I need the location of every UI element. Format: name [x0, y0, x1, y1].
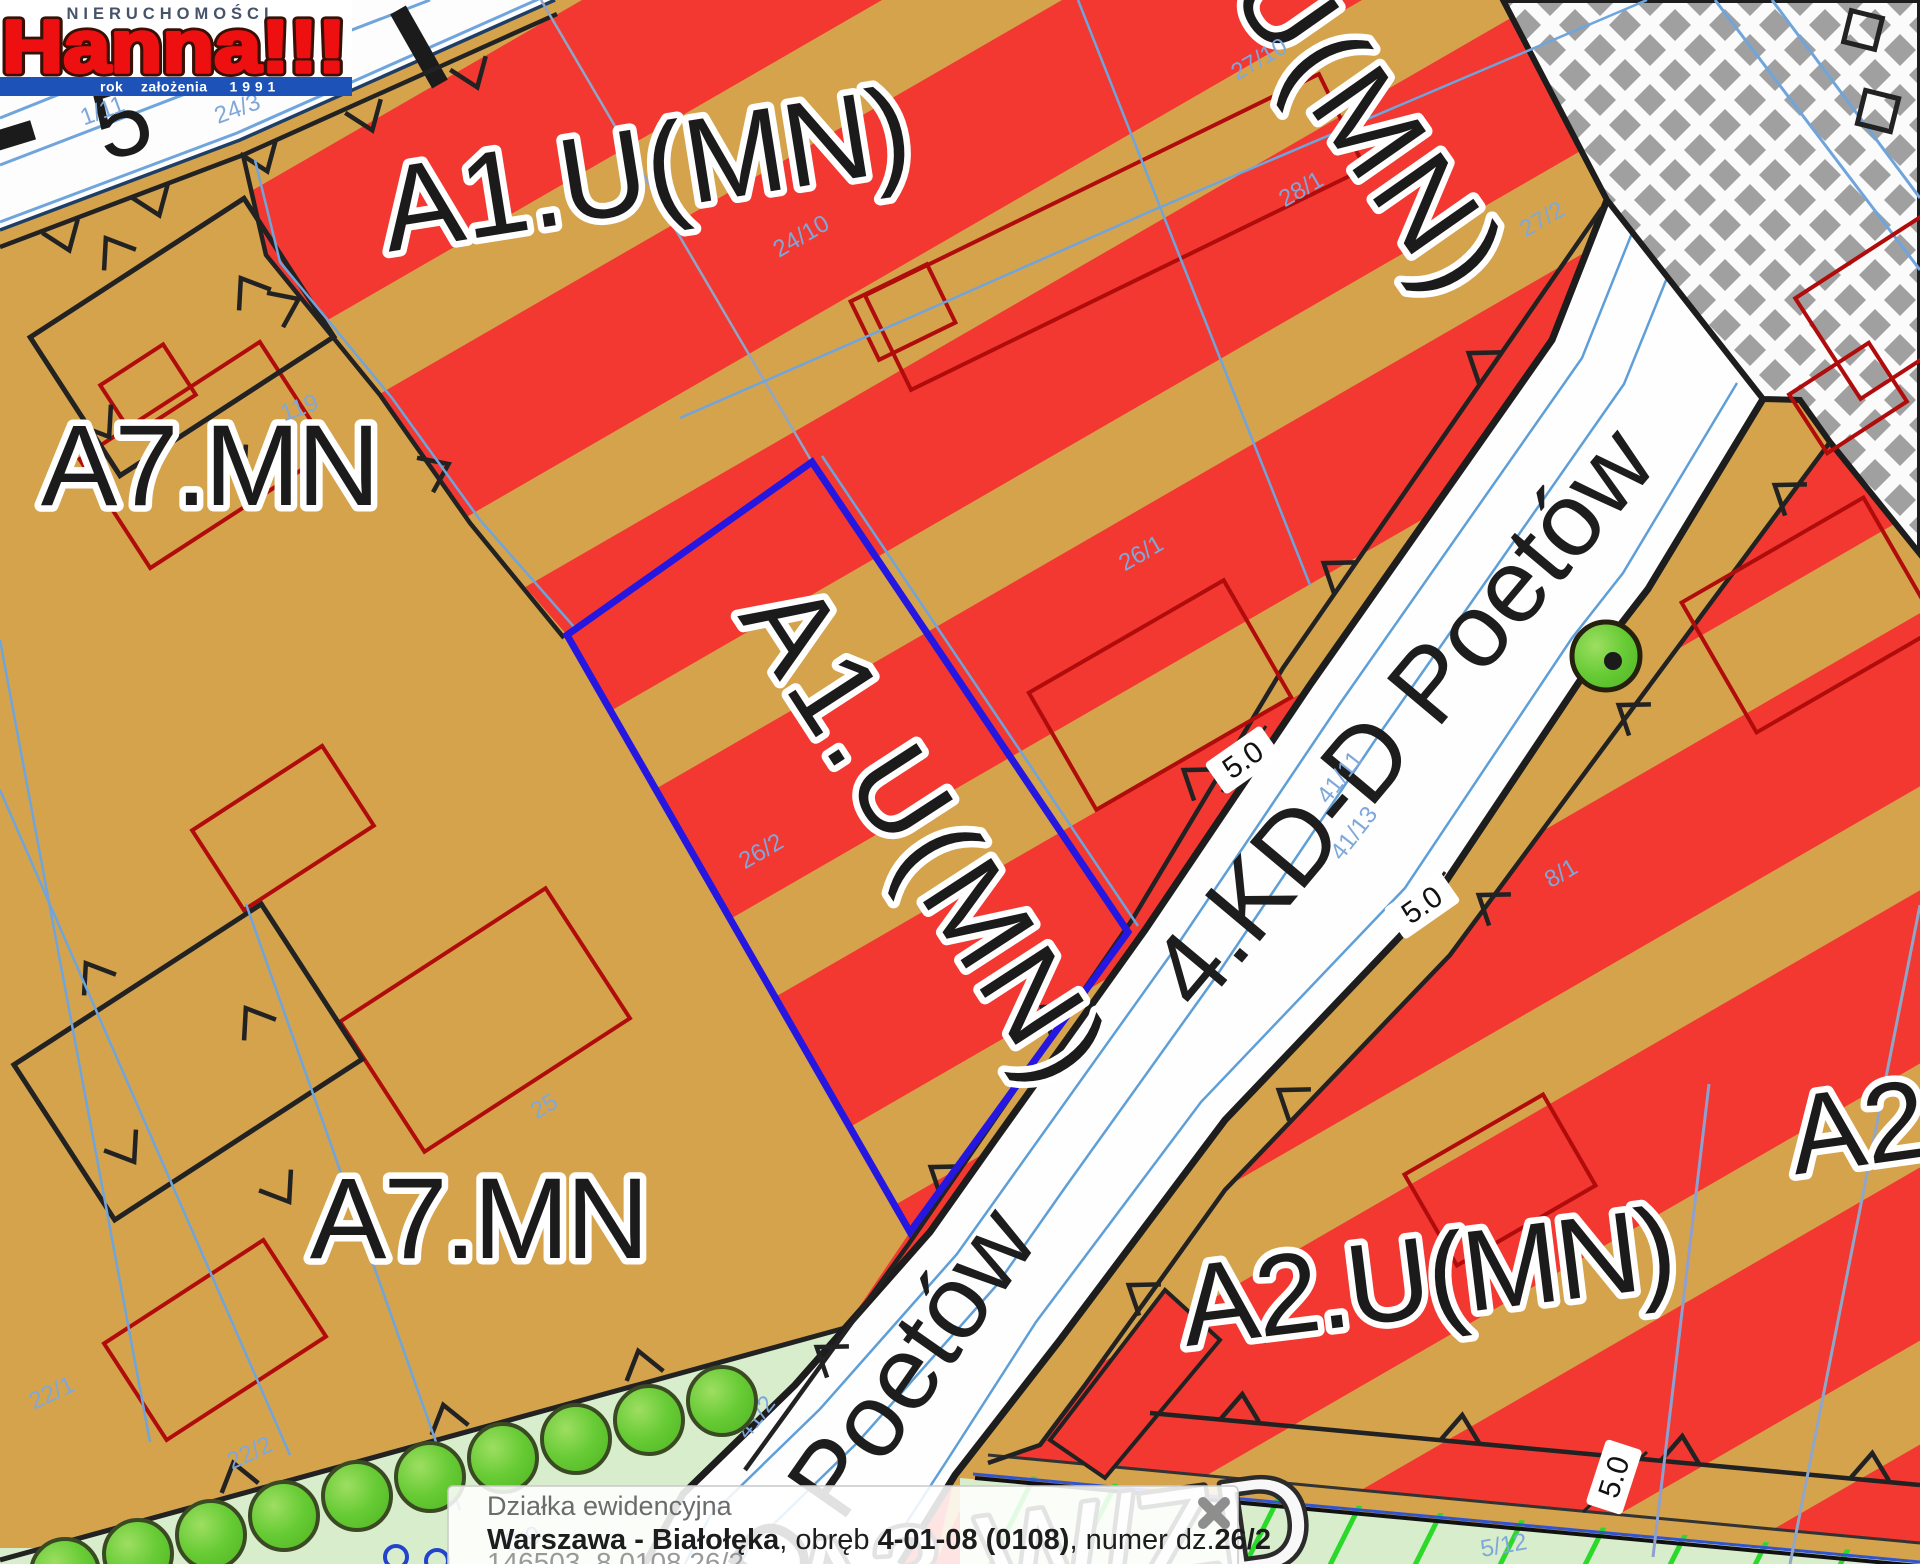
svg-text:A7.MN: A7.MN	[41, 402, 377, 530]
svg-text:146503 8.0108.26/2: 146503 8.0108.26/2	[487, 1547, 744, 1564]
svg-text:A7.MN: A7.MN	[310, 1155, 646, 1283]
svg-text:A2: A2	[1781, 1055, 1920, 1198]
svg-text:Działka ewidencyjna: Działka ewidencyjna	[487, 1491, 733, 1521]
svg-text:Hanna!!!: Hanna!!!	[2, 5, 346, 88]
